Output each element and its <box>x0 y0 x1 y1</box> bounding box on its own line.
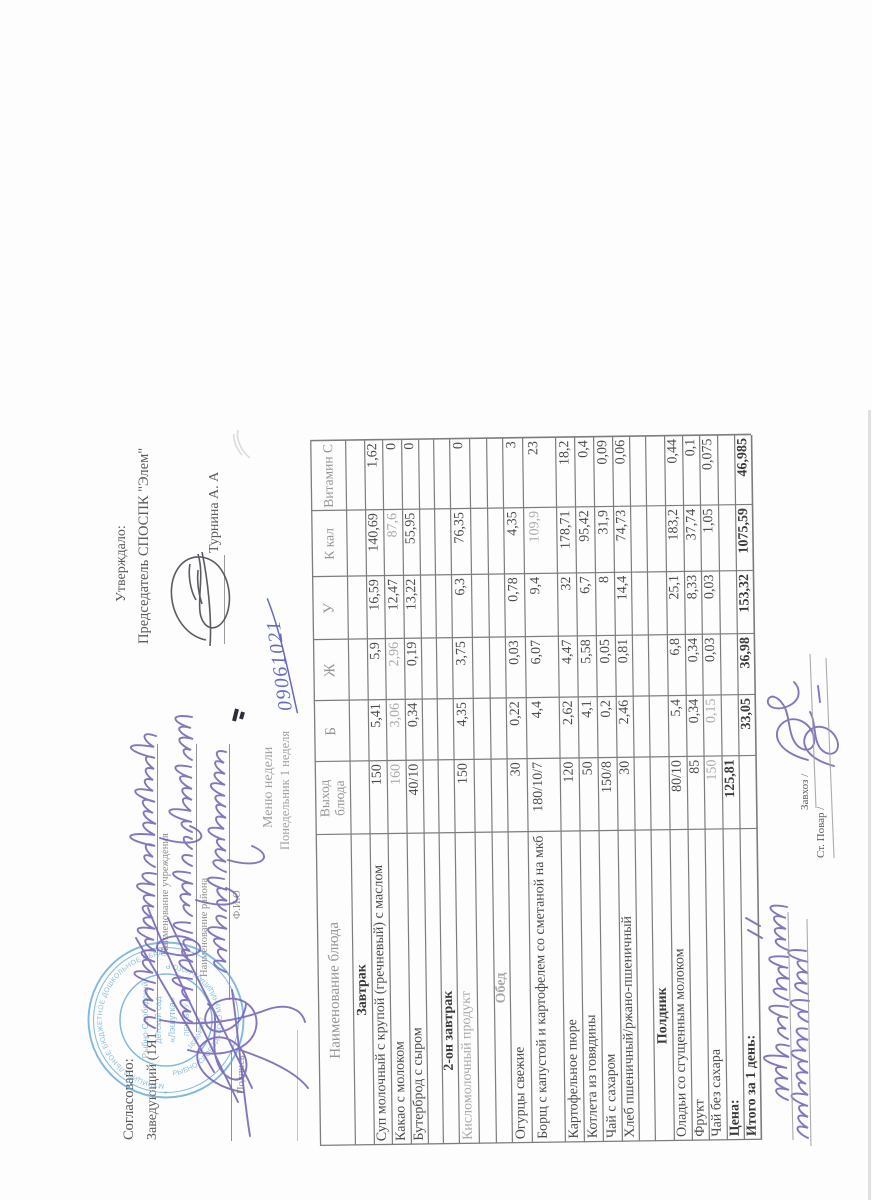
svg-text:09061021: 09061021 <box>262 618 297 712</box>
